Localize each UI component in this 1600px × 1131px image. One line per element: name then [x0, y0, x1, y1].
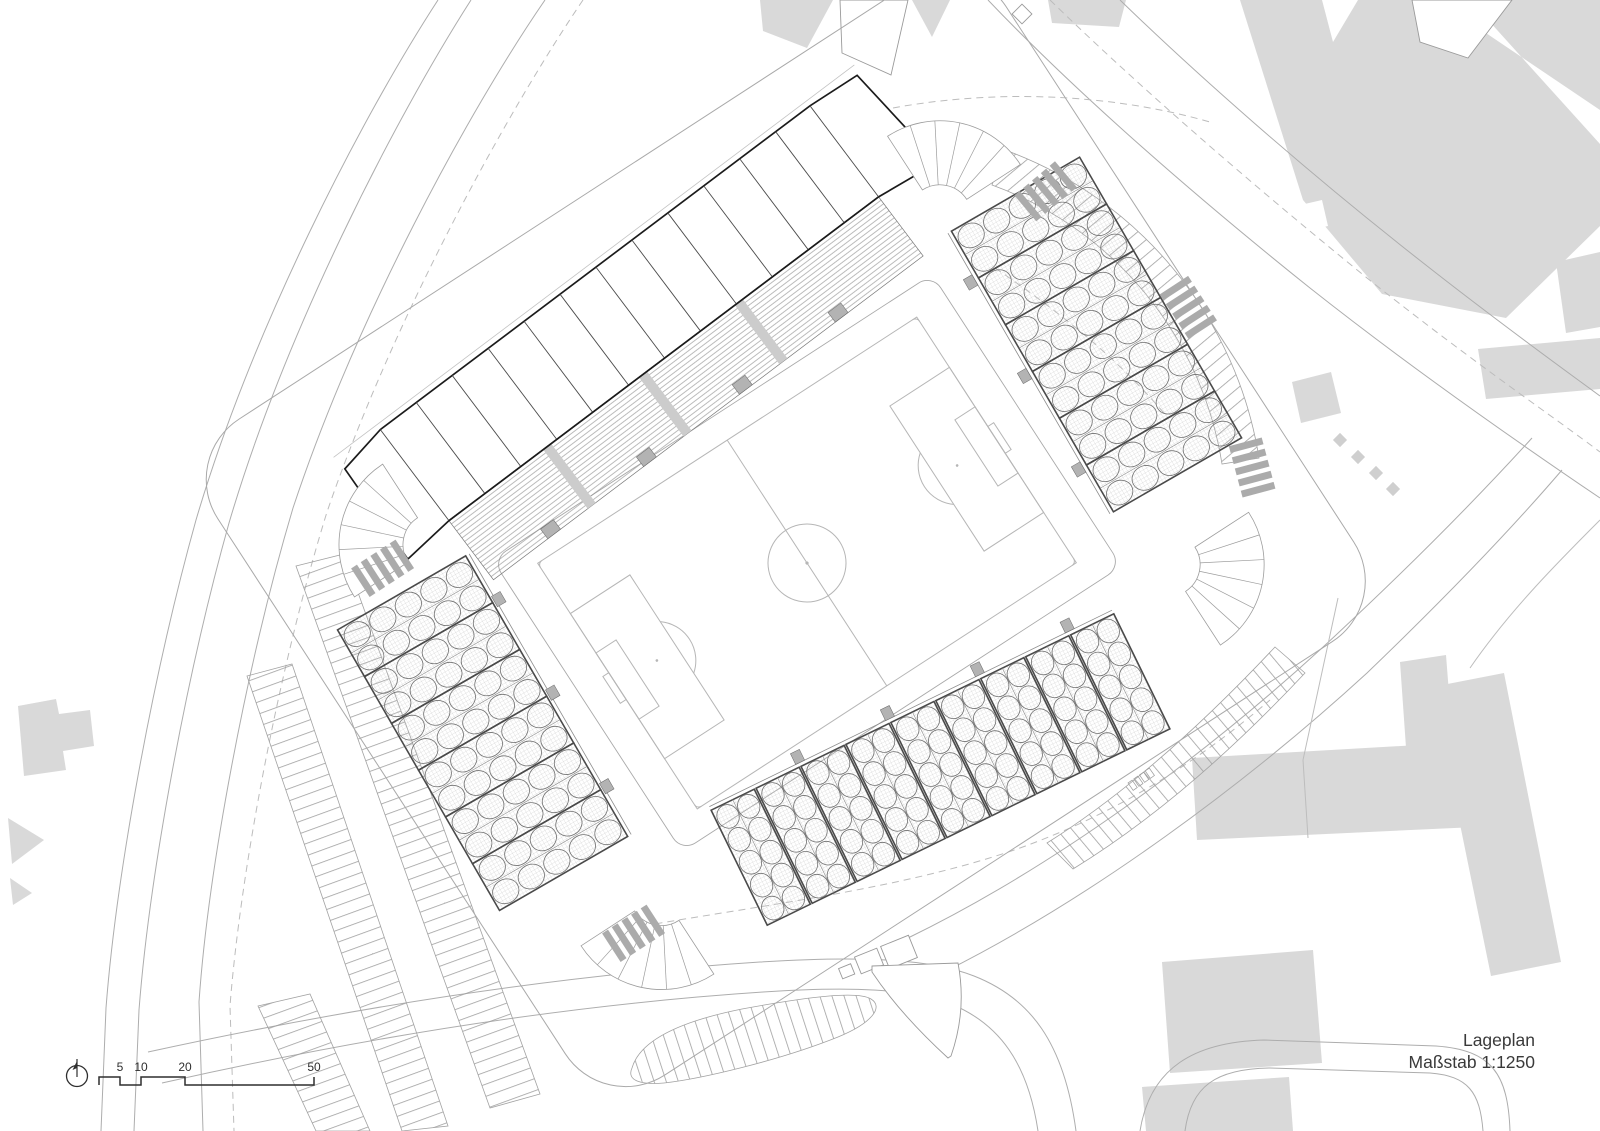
building-complex-southeast	[1162, 950, 1322, 1073]
building-outlined	[840, 0, 908, 75]
kiosk	[839, 964, 855, 979]
bollard-squares	[1333, 433, 1400, 496]
boundary-dashed	[893, 96, 1210, 122]
drawing-title: Lageplan	[1463, 1030, 1535, 1050]
building-block-northeast	[1240, 0, 1600, 318]
building-block-east	[1478, 338, 1600, 399]
penalty-arc	[660, 614, 706, 674]
scale-bar: 5 10 20 50	[67, 1059, 321, 1087]
stair-fan-southeast	[1168, 512, 1301, 645]
building-block-west	[18, 699, 94, 776]
building-block-east	[1556, 252, 1600, 333]
scale-tick-label: 5	[117, 1060, 124, 1074]
crosswalk	[1229, 437, 1276, 497]
north-stand	[332, 60, 977, 613]
stair-fan-northeast	[888, 84, 1021, 217]
south-stand	[704, 599, 1170, 925]
penalty-area	[890, 367, 1044, 551]
traffic-island	[872, 963, 961, 1058]
penalty-spot	[955, 464, 959, 468]
kiosk	[881, 935, 918, 968]
building-parcel-east	[1292, 372, 1341, 423]
building-complex-southeast	[1142, 1077, 1293, 1131]
penalty-area	[570, 575, 724, 759]
scale-tick-label: 50	[307, 1060, 321, 1074]
building-block-top-center	[912, 0, 950, 37]
drawing-scale: Maßstab 1:1250	[1409, 1052, 1536, 1072]
parking-island-south	[631, 995, 876, 1083]
building-block-west	[8, 818, 44, 864]
penalty-spot	[655, 659, 659, 663]
parcel-line	[1470, 520, 1600, 668]
site-plan-svg: 5 10 20 50 Lageplan Maßstab 1:1250	[0, 0, 1600, 1131]
building-block-west	[10, 878, 32, 905]
goal	[988, 423, 1011, 454]
scale-bar-line	[99, 1077, 314, 1085]
building-complex-southeast	[1192, 742, 1476, 840]
scale-tick-label: 20	[178, 1060, 192, 1074]
site-plan-page: 5 10 20 50 Lageplan Maßstab 1:1250	[0, 0, 1600, 1131]
goal	[603, 673, 626, 704]
penalty-arc	[908, 453, 954, 513]
scale-tick-label: 10	[134, 1060, 148, 1074]
title-block: Lageplan Maßstab 1:1250	[1409, 1030, 1536, 1072]
building-block-top-center	[1048, 0, 1126, 27]
north-arrow-icon	[67, 1059, 88, 1087]
